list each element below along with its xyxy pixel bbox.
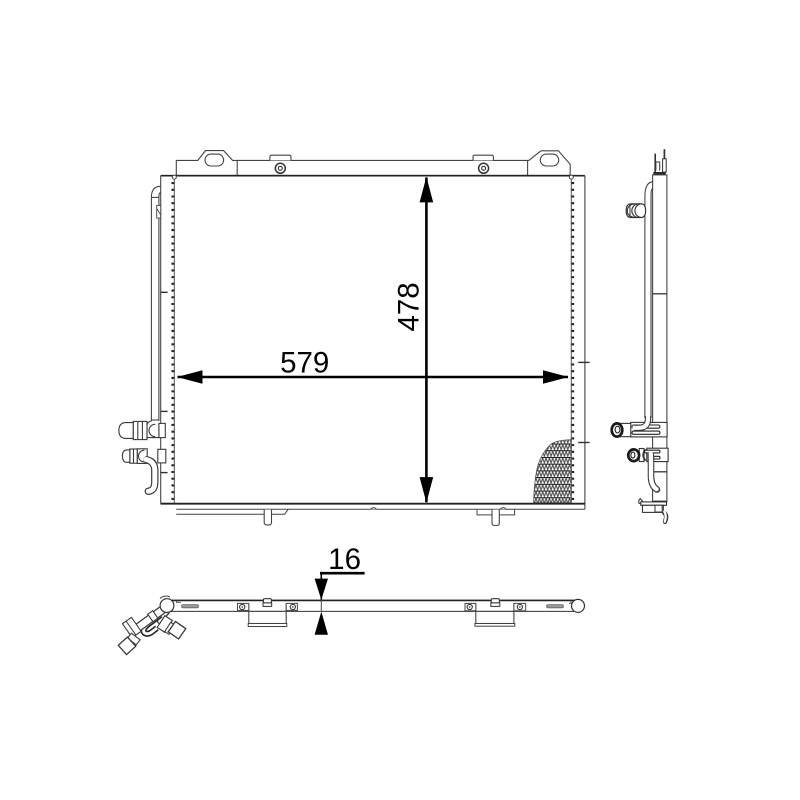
svg-text:478: 478: [393, 282, 426, 331]
svg-text:579: 579: [280, 346, 329, 379]
svg-text:16: 16: [328, 543, 361, 576]
